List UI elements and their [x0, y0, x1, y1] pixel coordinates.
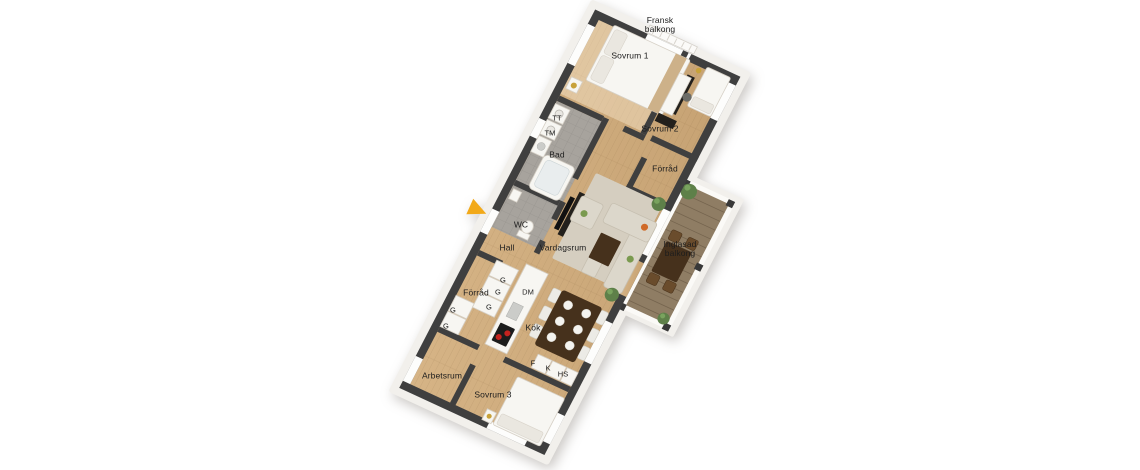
room-label-fransk-balkong: Fransk balkong: [635, 16, 685, 34]
floorplan-canvas: Fransk balkong Sovrum 1 Sovrum 2 Förråd …: [0, 0, 1140, 470]
room-label-kok: Kök: [526, 324, 541, 333]
appliance-label-tm: TM: [544, 129, 555, 138]
appliance-label-g: G: [495, 288, 501, 297]
room-label-sovrum-2: Sovrum 2: [641, 125, 678, 134]
appliance-label-k: K: [545, 364, 550, 373]
appliance-label-g: G: [450, 306, 456, 315]
room-label-hall: Hall: [499, 244, 514, 253]
room-label-sovrum-3: Sovrum 3: [474, 391, 511, 400]
appliance-label-dm: DM: [522, 288, 534, 297]
appliance-label-g: G: [500, 276, 506, 285]
room-label-forrad-lower: Förråd: [463, 289, 489, 298]
room-label-sovrum-1: Sovrum 1: [611, 52, 648, 61]
room-label-vardagsrum: Vardagsrum: [540, 244, 587, 253]
room-label-bad: Bad: [549, 151, 564, 160]
room-label-wc: WC: [514, 221, 528, 230]
appliance-label-g: G: [443, 322, 449, 331]
appliance-label-g: G: [486, 303, 492, 312]
appliance-label-f: F: [531, 359, 536, 368]
appliance-label-tt: TT: [552, 114, 561, 123]
room-label-arbetsrum: Arbetsrum: [422, 372, 462, 381]
room-label-inglasad-balkong: Inglasad balkong: [655, 240, 705, 258]
appliance-label-hs: HS: [558, 370, 569, 379]
floorplan-3d-rendering: [0, 0, 1140, 470]
room-label-forrad-upper: Förråd: [652, 165, 678, 174]
